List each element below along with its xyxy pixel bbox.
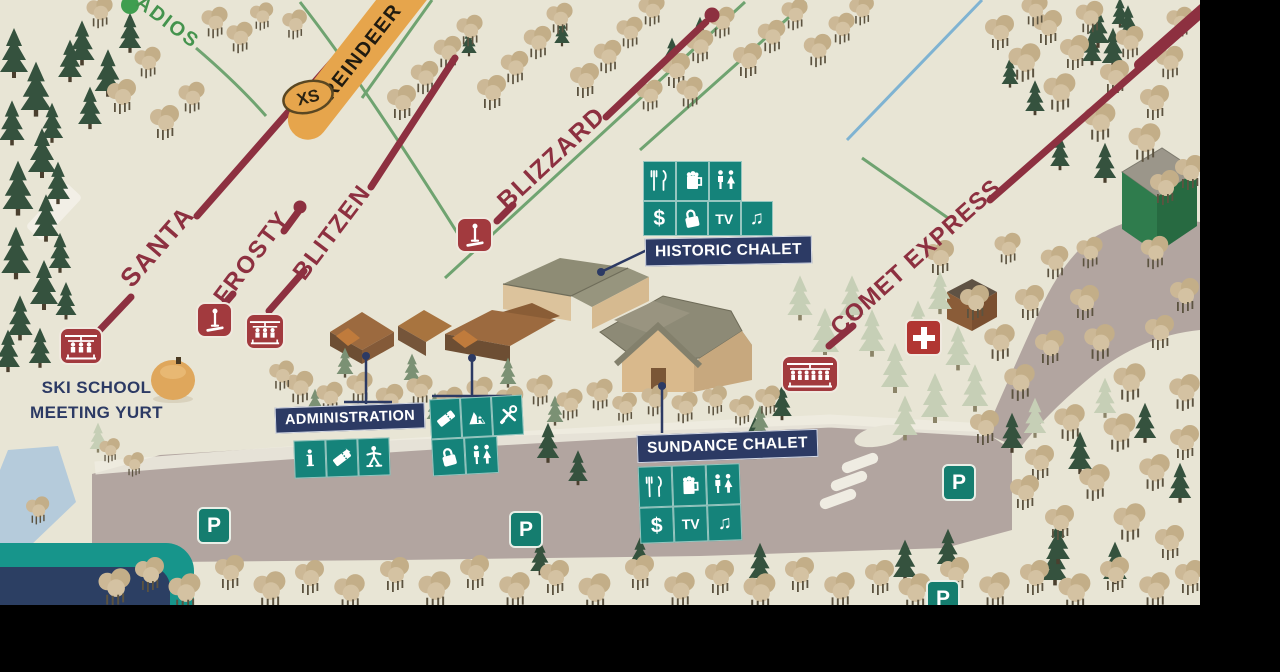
- first-aid-icon: [905, 319, 942, 356]
- ski-school-meeting-yurt-label: SKI SCHOOL MEETING YURT: [14, 376, 179, 425]
- atm-icon: $: [643, 201, 676, 236]
- letterbox-bottom: [0, 605, 1280, 672]
- dining-icon: [638, 466, 673, 508]
- blizzard-surface-lift-icon: [456, 217, 493, 253]
- atm-icon: $: [639, 507, 674, 544]
- dollar-glyph: $: [653, 208, 665, 229]
- administration-amenities-panel: i: [293, 437, 390, 478]
- dining-icon: [643, 161, 676, 201]
- restrooms-icon: [709, 161, 742, 201]
- repairs-icon: [491, 395, 524, 437]
- parking-sign: P: [926, 580, 960, 605]
- video-frame: REINDEER XS SANTA FROSTY BLITZEN BLIZZAR…: [0, 0, 1280, 672]
- restrooms-icon: [464, 436, 499, 475]
- info-glyph: i: [305, 448, 314, 470]
- parking-sign: P: [509, 511, 543, 548]
- rentals-icon: R: [460, 396, 493, 438]
- tickets-icon: [429, 398, 462, 440]
- music-glyph: ♫: [717, 513, 732, 532]
- blitzen-chairlift-icon: [245, 313, 285, 350]
- music-glyph: ♫: [750, 209, 764, 228]
- dollar-glyph: $: [651, 514, 663, 535]
- tickets-icon: [325, 438, 358, 477]
- letterbox-right: [1200, 0, 1280, 672]
- parking-sign-label: P: [936, 587, 950, 606]
- music-icon: ♫: [707, 504, 742, 541]
- bar-icon: [672, 464, 707, 506]
- rental-r-glyph: R: [475, 414, 484, 426]
- lockers-icon: [676, 201, 709, 236]
- administration-plate: ADMINISTRATION: [275, 402, 426, 433]
- restrooms-icon: [706, 463, 741, 505]
- lockers-icon: [431, 438, 466, 477]
- parking-sign: P: [197, 507, 231, 544]
- rental-services-panel: R: [429, 395, 526, 477]
- legend-box: [0, 543, 194, 605]
- frosty-surface-lift-icon: [196, 302, 233, 338]
- bar-icon: [676, 161, 709, 201]
- historic-chalet-plate: HISTORIC CHALET: [645, 236, 812, 267]
- ski-school-label-line2: MEETING YURT: [14, 401, 179, 426]
- ski-trail-map: REINDEER XS SANTA FROSTY BLITZEN BLIZZAR…: [0, 0, 1200, 605]
- tv-glyph: TV: [682, 517, 700, 532]
- information-icon: i: [293, 440, 326, 479]
- comet-express-chairlift-icon: [781, 355, 839, 393]
- tv-glyph: TV: [715, 212, 733, 226]
- terrain-artwork: REINDEER XS SANTA FROSTY BLITZEN BLIZZAR…: [0, 0, 1200, 605]
- ski-school-label-line1: SKI SCHOOL: [14, 376, 179, 401]
- parking-sign-label: P: [519, 518, 533, 542]
- sundance-chalet-label: SUNDANCE CHALET: [647, 434, 808, 457]
- music-icon: ♫: [741, 201, 774, 236]
- santa-chairlift-icon: [59, 327, 103, 365]
- parking-sign-label: P: [952, 471, 966, 495]
- ski-school-icon: [357, 437, 390, 476]
- tv-icon: TV: [673, 505, 708, 542]
- sundance-chalet-amenities-panel: $ TV ♫: [638, 463, 743, 544]
- tv-icon: TV: [708, 201, 741, 236]
- parking-sign-label: P: [207, 514, 221, 538]
- historic-chalet-label: HISTORIC CHALET: [655, 241, 802, 261]
- historic-chalet-amenities-panel: $ TV ♫: [643, 161, 773, 236]
- administration-label: ADMINISTRATION: [285, 408, 416, 429]
- parking-sign: P: [942, 464, 976, 501]
